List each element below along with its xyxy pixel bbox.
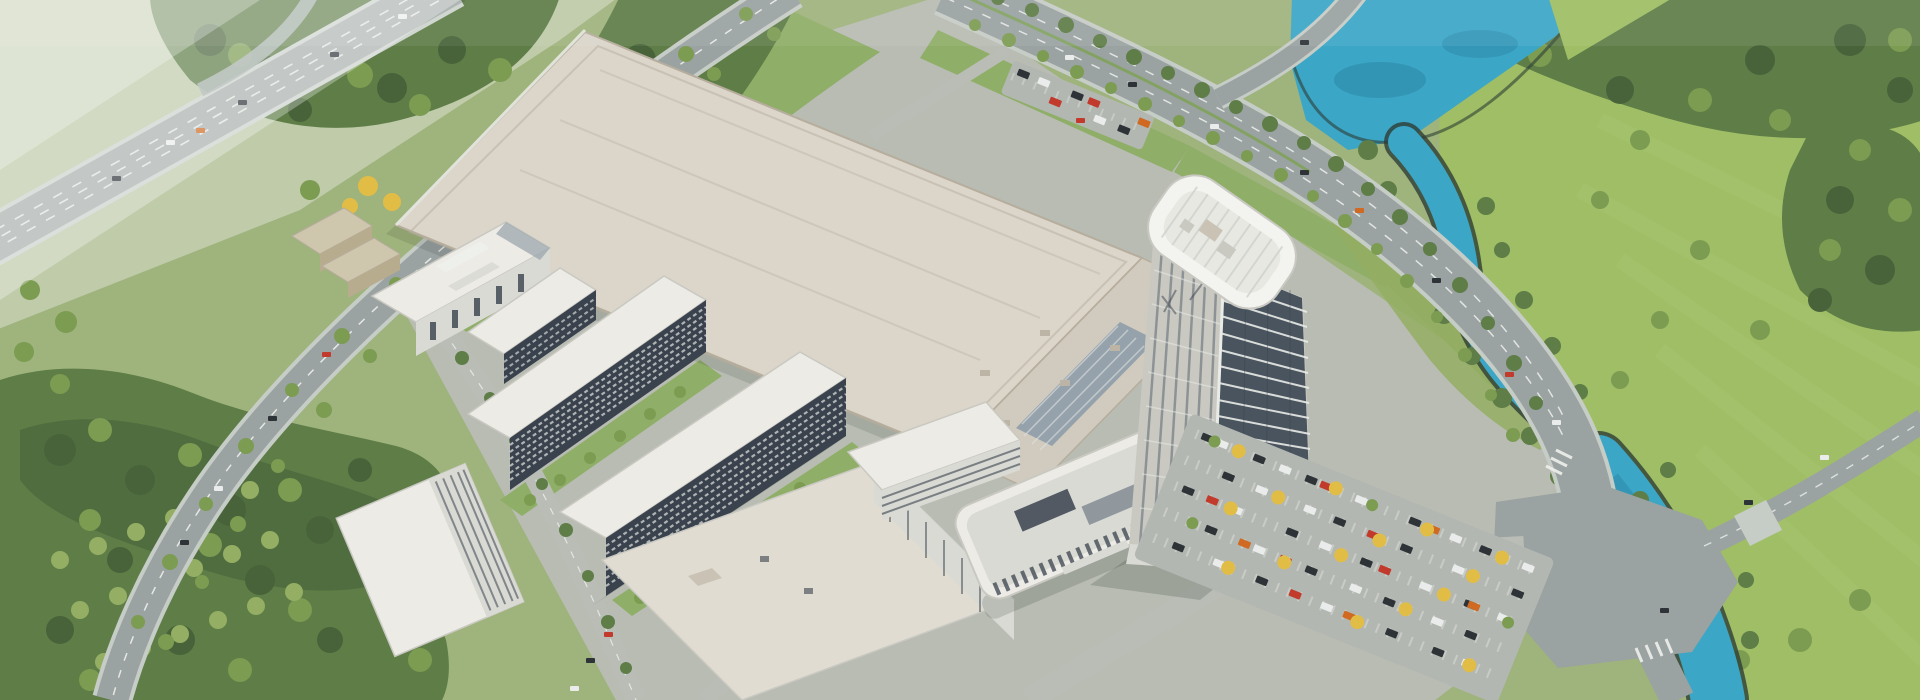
lake-deep-patch — [1334, 62, 1426, 98]
canteen-roof-vent-2 — [804, 588, 813, 594]
canteen-roof-vent-1 — [760, 556, 769, 562]
fog-top-strip — [0, 0, 1920, 46]
aerial-campus-rendering — [0, 0, 1920, 700]
campus-scene — [0, 0, 1920, 700]
